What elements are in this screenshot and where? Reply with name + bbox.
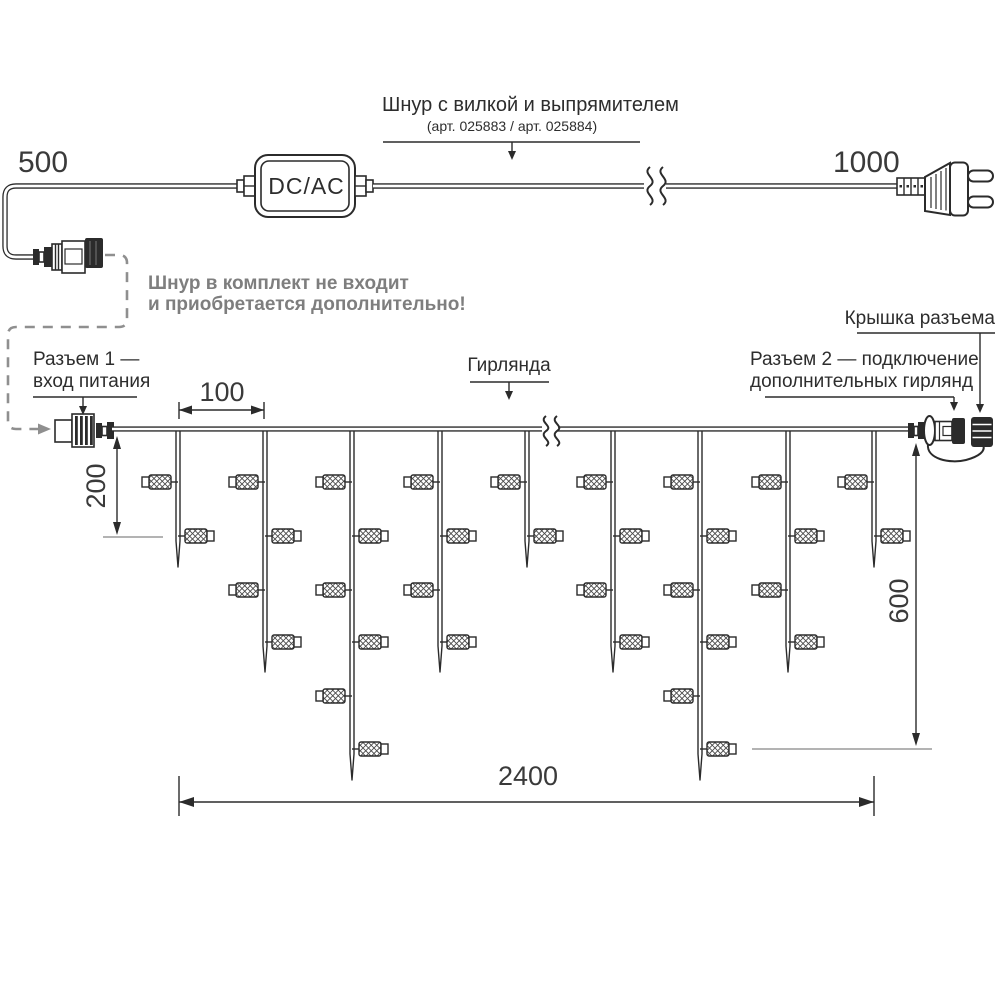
lamp xyxy=(352,742,388,756)
dim-label-500: 500 xyxy=(18,146,68,180)
lamp xyxy=(404,583,440,597)
dim-label-100: 100 xyxy=(179,377,265,408)
lamp xyxy=(700,742,736,756)
lamp xyxy=(440,635,476,649)
lamp xyxy=(265,635,301,649)
cord-break-icon xyxy=(647,167,665,205)
lamp xyxy=(788,529,824,543)
power-plug xyxy=(897,163,993,216)
lamp xyxy=(491,475,527,489)
lamp xyxy=(752,475,788,489)
connector-cap xyxy=(971,417,993,447)
lamp xyxy=(352,529,388,543)
cord-subtitle: (арт. 025883 / арт. 025884) xyxy=(382,118,642,134)
dim-label-1000: 1000 xyxy=(833,146,889,180)
cord-connector xyxy=(33,238,103,273)
lamp xyxy=(316,583,352,597)
lamp xyxy=(664,689,700,703)
lamp xyxy=(440,529,476,543)
garland-drop-long xyxy=(316,431,388,780)
drop-wire xyxy=(872,431,876,567)
garland-drop-short xyxy=(142,431,214,567)
lamp xyxy=(700,529,736,543)
plug-prong xyxy=(968,171,993,182)
cap-label: Крышка разъема xyxy=(819,308,995,330)
drop-wire xyxy=(698,431,702,780)
drop-wire xyxy=(611,431,615,672)
lamp xyxy=(613,529,649,543)
drop-wire xyxy=(350,431,354,780)
drop-wire xyxy=(786,431,790,672)
drop-wire xyxy=(525,431,529,567)
converter-label: DC/AC xyxy=(257,173,356,200)
lamp xyxy=(577,475,613,489)
lamp xyxy=(229,583,265,597)
lamp xyxy=(664,475,700,489)
lamp xyxy=(838,475,874,489)
garland-drops xyxy=(142,431,910,780)
connector-1-label-line2: вход питания xyxy=(33,371,150,393)
lamp xyxy=(577,583,613,597)
lamp xyxy=(404,475,440,489)
lamp xyxy=(613,635,649,649)
dashed-connection-path xyxy=(8,255,127,435)
drop-wire xyxy=(263,431,267,672)
lamp xyxy=(229,475,265,489)
garland-drop-short xyxy=(491,431,563,567)
lamp xyxy=(700,635,736,649)
dim-label-600: 600 xyxy=(884,561,914,641)
lamp xyxy=(352,635,388,649)
callout-connector-1 xyxy=(33,397,137,415)
garland-drop-medium xyxy=(229,431,301,672)
lamp xyxy=(316,689,352,703)
callout-connector-2 xyxy=(765,397,958,411)
drop-wire xyxy=(438,431,442,672)
lamp xyxy=(788,635,824,649)
lamp xyxy=(664,583,700,597)
icicle-garland-diagram: 500 1000 Шнур с вилкой и выпрямителем (а… xyxy=(0,0,1000,1000)
plug-prong xyxy=(968,197,993,208)
cord-note-line2: и приобретается дополнительно! xyxy=(148,294,466,315)
connector-2-label-line1: Разъем 2 — подключение xyxy=(750,349,970,371)
dashed-path-arrowhead xyxy=(38,424,51,435)
garland-drop-medium xyxy=(577,431,649,672)
garland-drop-medium xyxy=(752,431,824,672)
garland-label: Гирлянда xyxy=(449,355,569,377)
lamp xyxy=(265,529,301,543)
lamp xyxy=(316,475,352,489)
drop-wire xyxy=(176,431,180,567)
connector-2 xyxy=(952,418,965,444)
connector-2-label-line2: дополнительных гирлянд xyxy=(750,371,970,393)
callout-garland xyxy=(470,382,549,400)
cord-note-line1: Шнур в комплект не входит xyxy=(148,273,409,294)
cord-title: Шнур с вилкой и выпрямителем xyxy=(382,94,642,117)
garland-drop-medium xyxy=(404,431,476,672)
lamp xyxy=(752,583,788,597)
cord-connector-black-cap xyxy=(85,238,103,268)
lamp xyxy=(142,475,178,489)
connector-1-label-line1: Разъем 1 — xyxy=(33,349,139,371)
connector-2-assembly xyxy=(908,416,993,461)
dim-label-2400: 2400 xyxy=(466,761,590,792)
lamp xyxy=(527,529,563,543)
garland-drop-long xyxy=(664,431,736,780)
garland-main-wire xyxy=(112,416,908,446)
garland-drop-short xyxy=(838,431,910,567)
connector-1 xyxy=(55,414,114,447)
power-cord-left xyxy=(5,186,244,257)
dim-label-200: 200 xyxy=(81,446,111,526)
wire-break-icon xyxy=(544,416,560,446)
callout-cord-title xyxy=(383,142,640,160)
lamp xyxy=(874,529,910,543)
power-cord-right xyxy=(373,167,898,205)
lamp xyxy=(178,529,214,543)
